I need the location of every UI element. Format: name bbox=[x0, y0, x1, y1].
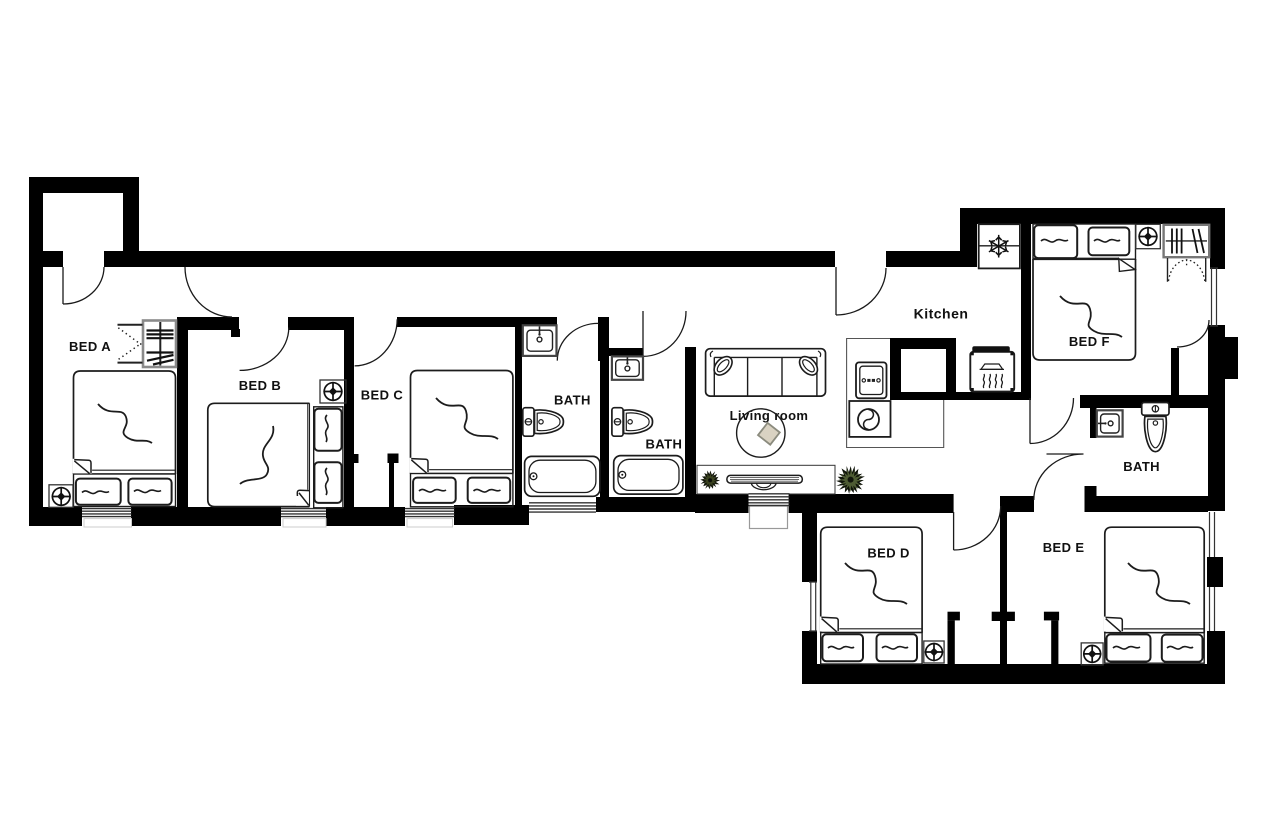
svg-text:BED A: BED A bbox=[69, 339, 111, 354]
svg-text:BATH: BATH bbox=[646, 437, 683, 452]
svg-text:BED D: BED D bbox=[867, 545, 909, 560]
svg-text:BATH: BATH bbox=[1123, 459, 1160, 474]
svg-text:BED C: BED C bbox=[361, 388, 404, 403]
svg-text:BATH: BATH bbox=[554, 393, 591, 408]
svg-text:Kitchen: Kitchen bbox=[914, 306, 969, 322]
svg-text:BED E: BED E bbox=[1043, 540, 1085, 555]
svg-text:BED F: BED F bbox=[1069, 334, 1110, 349]
svg-text:BED B: BED B bbox=[239, 378, 281, 393]
